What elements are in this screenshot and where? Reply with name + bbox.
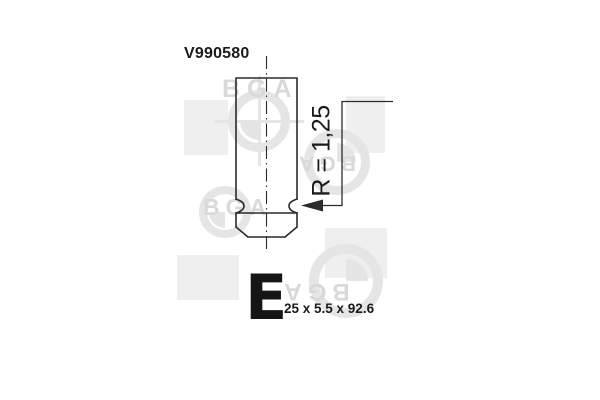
radius-dimension-label: R = 1,25: [308, 105, 337, 196]
valve-type-letter: E: [245, 275, 287, 320]
valve-technical-drawing-canvas: BGA BGA BGA BGA V990580 R = 1,25 E 25 x …: [0, 0, 600, 400]
radius-arrowhead: [301, 200, 323, 212]
valve-drawing: [0, 0, 600, 400]
part-number-label: V990580: [184, 45, 249, 63]
valve-size-dimensions: 25 x 5.5 x 92.6: [284, 301, 374, 316]
